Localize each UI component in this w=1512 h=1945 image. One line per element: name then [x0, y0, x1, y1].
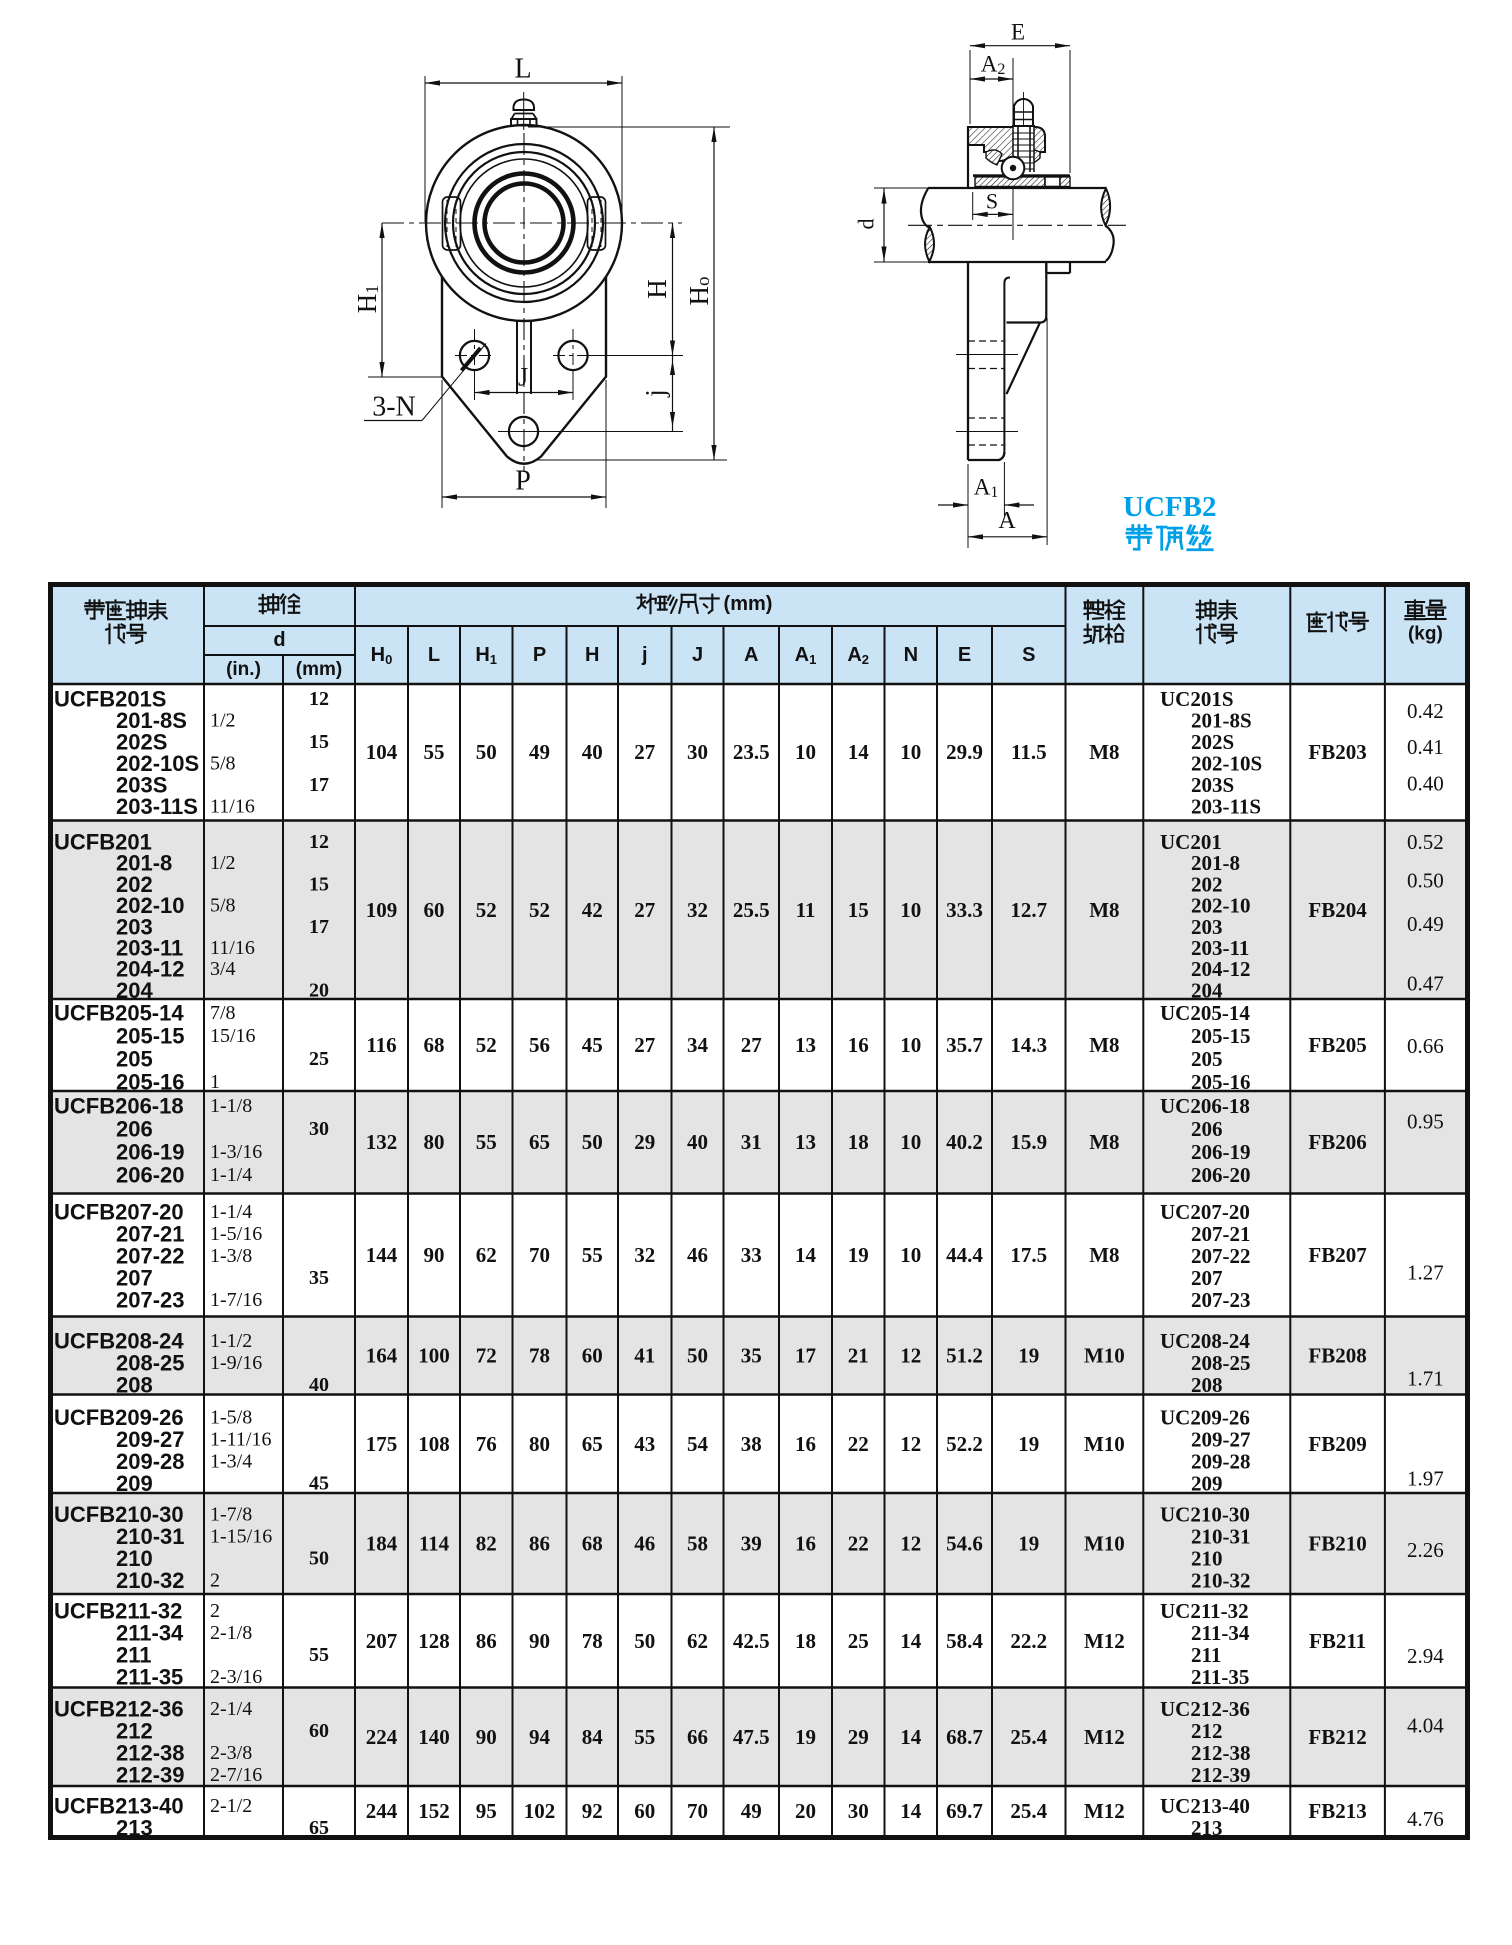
svg-text:55: 55 — [424, 740, 445, 764]
svg-text:A: A — [744, 644, 758, 666]
svg-text:102: 102 — [524, 1799, 556, 1823]
svg-text:55: 55 — [582, 1243, 603, 1267]
svg-text:205-16: 205-16 — [116, 1070, 185, 1095]
svg-text:60: 60 — [424, 898, 445, 922]
svg-text:132: 132 — [366, 1130, 398, 1154]
svg-text:5/8: 5/8 — [210, 895, 236, 917]
svg-text:FB212: FB212 — [1308, 1725, 1366, 1749]
svg-text:1/2: 1/2 — [210, 710, 236, 732]
svg-text:22: 22 — [848, 1432, 869, 1456]
svg-text:60: 60 — [582, 1344, 603, 1368]
svg-text:35: 35 — [741, 1344, 762, 1368]
svg-text:27: 27 — [741, 1033, 762, 1057]
svg-text:38: 38 — [741, 1432, 762, 1456]
svg-text:140: 140 — [418, 1725, 450, 1749]
svg-text:224: 224 — [366, 1725, 398, 1749]
svg-text:12: 12 — [309, 688, 329, 710]
svg-text:55: 55 — [309, 1644, 329, 1666]
svg-text:35: 35 — [309, 1267, 329, 1289]
svg-text:7/8: 7/8 — [210, 1002, 236, 1024]
svg-text:205-15: 205-15 — [1191, 1024, 1251, 1048]
svg-text:80: 80 — [424, 1130, 445, 1154]
svg-text:90: 90 — [529, 1629, 550, 1653]
svg-text:15: 15 — [309, 873, 329, 895]
svg-text:E: E — [1011, 20, 1025, 45]
svg-text:33.3: 33.3 — [946, 898, 983, 922]
svg-text:78: 78 — [529, 1344, 550, 1368]
svg-text:31: 31 — [741, 1130, 762, 1154]
svg-text:203-11S: 203-11S — [1191, 795, 1261, 819]
svg-text:M12: M12 — [1084, 1799, 1125, 1823]
svg-text:50: 50 — [634, 1629, 655, 1653]
svg-text:1-9/16: 1-9/16 — [210, 1352, 262, 1374]
svg-text:12: 12 — [900, 1432, 921, 1456]
svg-text:0.95: 0.95 — [1407, 1109, 1444, 1133]
svg-text:213: 213 — [1191, 1816, 1223, 1840]
svg-text:M12: M12 — [1084, 1629, 1125, 1653]
svg-text:212-39: 212-39 — [116, 1763, 185, 1788]
svg-text:90: 90 — [424, 1243, 445, 1267]
svg-text:3/4: 3/4 — [210, 958, 236, 980]
svg-text:2-1/4: 2-1/4 — [210, 1698, 252, 1720]
svg-text:206-19: 206-19 — [116, 1140, 185, 1165]
svg-text:2.26: 2.26 — [1407, 1538, 1444, 1562]
svg-text:45: 45 — [582, 1033, 603, 1057]
svg-text:1-3/16: 1-3/16 — [210, 1141, 262, 1163]
svg-text:0.50: 0.50 — [1407, 869, 1444, 893]
svg-text:212-38: 212-38 — [1191, 1741, 1251, 1765]
svg-text:32: 32 — [634, 1243, 655, 1267]
svg-text:29: 29 — [848, 1725, 869, 1749]
svg-text:25.5: 25.5 — [733, 898, 770, 922]
svg-text:60: 60 — [634, 1799, 655, 1823]
svg-text:52: 52 — [529, 898, 550, 922]
svg-text:104: 104 — [366, 740, 398, 764]
svg-text:55: 55 — [634, 1725, 655, 1749]
svg-text:M10: M10 — [1084, 1344, 1125, 1368]
svg-text:206-20: 206-20 — [116, 1163, 185, 1188]
svg-text:211-35: 211-35 — [116, 1665, 183, 1690]
svg-text:84: 84 — [582, 1725, 604, 1749]
svg-text:95: 95 — [476, 1799, 497, 1823]
svg-text:FB209: FB209 — [1308, 1432, 1366, 1456]
svg-text:211-35: 211-35 — [1191, 1665, 1249, 1689]
svg-text:15: 15 — [848, 898, 869, 922]
svg-text:H: H — [585, 644, 599, 666]
svg-text:3-N: 3-N — [372, 392, 416, 423]
svg-text:209-27: 209-27 — [1191, 1428, 1251, 1452]
svg-text:14: 14 — [848, 740, 870, 764]
svg-text:1-3/4: 1-3/4 — [210, 1451, 252, 1473]
svg-text:205: 205 — [116, 1047, 153, 1072]
svg-text:1-1/2: 1-1/2 — [210, 1330, 252, 1352]
svg-text:2: 2 — [210, 1600, 220, 1622]
svg-text:30: 30 — [687, 740, 708, 764]
svg-text:52: 52 — [476, 898, 497, 922]
svg-text:40: 40 — [309, 1374, 329, 1396]
svg-text:M10: M10 — [1084, 1532, 1125, 1556]
svg-text:207-22: 207-22 — [1191, 1244, 1251, 1268]
svg-text:206-19: 206-19 — [1191, 1140, 1251, 1164]
svg-text:54.6: 54.6 — [946, 1532, 983, 1556]
svg-text:1-7/8: 1-7/8 — [210, 1504, 252, 1526]
svg-text:13: 13 — [795, 1033, 816, 1057]
svg-text:1-1/4: 1-1/4 — [210, 1164, 252, 1186]
svg-text:108: 108 — [418, 1432, 450, 1456]
svg-text:M8: M8 — [1089, 1130, 1119, 1154]
svg-text:33: 33 — [741, 1243, 762, 1267]
svg-text:21: 21 — [848, 1344, 869, 1368]
svg-text:206: 206 — [1191, 1117, 1223, 1141]
svg-text:1-3/8: 1-3/8 — [210, 1245, 252, 1267]
svg-text:FB203: FB203 — [1308, 740, 1366, 764]
svg-text:65: 65 — [582, 1432, 603, 1456]
svg-text:49: 49 — [529, 740, 550, 764]
svg-text:205-16: 205-16 — [1191, 1070, 1251, 1094]
svg-text:UC207-20: UC207-20 — [1160, 1200, 1250, 1224]
svg-text:FB205: FB205 — [1308, 1033, 1366, 1057]
svg-text:16: 16 — [795, 1432, 816, 1456]
svg-text:44.4: 44.4 — [946, 1243, 983, 1267]
svg-text:69.7: 69.7 — [946, 1799, 983, 1823]
svg-text:202-10S: 202-10S — [1191, 752, 1262, 776]
svg-text:M8: M8 — [1089, 740, 1119, 764]
svg-text:19: 19 — [795, 1725, 816, 1749]
svg-text:18: 18 — [795, 1629, 816, 1653]
svg-text:202S: 202S — [1191, 730, 1234, 754]
svg-text:2-3/8: 2-3/8 — [210, 1742, 252, 1764]
svg-text:11: 11 — [796, 898, 816, 922]
svg-text:25.4: 25.4 — [1010, 1799, 1047, 1823]
svg-text:209: 209 — [116, 1471, 153, 1496]
svg-text:62: 62 — [687, 1629, 708, 1653]
svg-text:2-3/16: 2-3/16 — [210, 1666, 262, 1688]
svg-text:1-1/8: 1-1/8 — [210, 1095, 252, 1117]
svg-text:17: 17 — [795, 1344, 816, 1368]
svg-text:70: 70 — [687, 1799, 708, 1823]
svg-text:90: 90 — [476, 1725, 497, 1749]
svg-text:40: 40 — [582, 740, 603, 764]
svg-text:204: 204 — [1191, 978, 1223, 1002]
svg-text:1.27: 1.27 — [1407, 1260, 1444, 1284]
svg-text:10: 10 — [900, 1130, 921, 1154]
svg-text:17: 17 — [309, 916, 329, 938]
svg-text:52: 52 — [476, 1033, 497, 1057]
svg-text:58.4: 58.4 — [946, 1629, 983, 1653]
svg-text:68: 68 — [424, 1033, 445, 1057]
svg-text:11/16: 11/16 — [210, 796, 255, 818]
svg-text:86: 86 — [476, 1629, 497, 1653]
svg-text:14: 14 — [795, 1243, 817, 1267]
svg-text:205-15: 205-15 — [116, 1024, 185, 1049]
svg-text:12: 12 — [309, 831, 329, 853]
svg-text:80: 80 — [529, 1432, 550, 1456]
svg-text:J: J — [692, 644, 703, 666]
svg-text:42: 42 — [582, 898, 603, 922]
svg-text:25: 25 — [848, 1629, 869, 1653]
svg-text:39: 39 — [741, 1532, 762, 1556]
svg-text:1/2: 1/2 — [210, 852, 236, 874]
svg-text:FB207: FB207 — [1308, 1243, 1366, 1267]
svg-text:4.76: 4.76 — [1407, 1807, 1444, 1831]
svg-text:208: 208 — [116, 1373, 153, 1398]
svg-text:A: A — [998, 508, 1016, 534]
svg-text:164: 164 — [366, 1344, 398, 1368]
svg-text:82: 82 — [476, 1532, 497, 1556]
svg-text:201-8S: 201-8S — [1191, 709, 1252, 733]
svg-text:19: 19 — [1018, 1432, 1039, 1456]
svg-text:128: 128 — [418, 1629, 450, 1653]
svg-text:32: 32 — [687, 898, 708, 922]
svg-text:144: 144 — [366, 1243, 398, 1267]
svg-text:50: 50 — [687, 1344, 708, 1368]
svg-text:29.9: 29.9 — [946, 740, 983, 764]
svg-text:P: P — [515, 466, 531, 497]
svg-text:209-28: 209-28 — [1191, 1450, 1251, 1474]
svg-text:5/8: 5/8 — [210, 753, 236, 775]
svg-text:207-21: 207-21 — [1191, 1222, 1251, 1246]
svg-text:27: 27 — [634, 898, 655, 922]
svg-text:50: 50 — [309, 1548, 329, 1570]
svg-text:66: 66 — [687, 1725, 708, 1749]
svg-text:209: 209 — [1191, 1472, 1223, 1496]
svg-text:19: 19 — [1018, 1344, 1039, 1368]
svg-text:1-11/16: 1-11/16 — [210, 1429, 271, 1451]
svg-text:M10: M10 — [1084, 1432, 1125, 1456]
svg-text:S: S — [986, 189, 998, 214]
svg-text:M12: M12 — [1084, 1725, 1125, 1749]
svg-text:45: 45 — [309, 1473, 329, 1495]
svg-text:12.7: 12.7 — [1010, 898, 1047, 922]
svg-text:FB213: FB213 — [1308, 1799, 1366, 1823]
svg-text:UC209-26: UC209-26 — [1160, 1406, 1250, 1430]
svg-text:UC212-36: UC212-36 — [1160, 1697, 1250, 1721]
svg-text:65: 65 — [529, 1130, 550, 1154]
svg-text:46: 46 — [687, 1243, 708, 1267]
svg-text:19: 19 — [848, 1243, 869, 1267]
svg-text:(mm): (mm) — [724, 593, 773, 615]
svg-text:116: 116 — [366, 1033, 396, 1057]
svg-text:52.2: 52.2 — [946, 1432, 983, 1456]
svg-text:0.40: 0.40 — [1407, 772, 1444, 796]
svg-text:208: 208 — [1191, 1373, 1223, 1397]
svg-text:47.5: 47.5 — [733, 1725, 770, 1749]
svg-text:FB208: FB208 — [1308, 1344, 1366, 1368]
svg-text:50: 50 — [476, 740, 497, 764]
svg-text:S: S — [1022, 644, 1035, 666]
svg-text:FB204: FB204 — [1308, 898, 1367, 922]
svg-text:207-23: 207-23 — [1191, 1288, 1251, 1312]
svg-text:d: d — [854, 219, 879, 230]
svg-text:56: 56 — [529, 1033, 550, 1057]
svg-text:22: 22 — [848, 1532, 869, 1556]
svg-text:17.5: 17.5 — [1010, 1243, 1047, 1267]
svg-text:0.47: 0.47 — [1407, 972, 1444, 996]
svg-text:j: j — [640, 389, 670, 398]
svg-text:213: 213 — [116, 1816, 153, 1841]
svg-text:207-23: 207-23 — [116, 1288, 185, 1313]
svg-text:42.5: 42.5 — [733, 1629, 770, 1653]
svg-text:UC213-40: UC213-40 — [1160, 1794, 1250, 1818]
svg-text:30: 30 — [848, 1799, 869, 1823]
svg-text:20: 20 — [795, 1799, 816, 1823]
svg-text:78: 78 — [582, 1629, 603, 1653]
svg-text:1-7/16: 1-7/16 — [210, 1289, 262, 1311]
svg-text:244: 244 — [366, 1799, 398, 1823]
svg-text:40.2: 40.2 — [946, 1130, 983, 1154]
svg-text:11/16: 11/16 — [210, 937, 255, 959]
svg-text:205: 205 — [1191, 1047, 1223, 1071]
svg-text:11.5: 11.5 — [1011, 740, 1047, 764]
svg-text:UC210-30: UC210-30 — [1160, 1503, 1250, 1527]
svg-text:L: L — [428, 644, 440, 666]
svg-text:68: 68 — [582, 1532, 603, 1556]
svg-text:1-5/8: 1-5/8 — [210, 1407, 252, 1429]
svg-text:0.42: 0.42 — [1407, 699, 1444, 723]
svg-text:UCFB205-14: UCFB205-14 — [54, 1001, 184, 1026]
svg-text:15/16: 15/16 — [210, 1025, 256, 1047]
svg-text:0.52: 0.52 — [1407, 830, 1444, 854]
svg-text:100: 100 — [418, 1344, 450, 1368]
svg-text:25.4: 25.4 — [1010, 1725, 1047, 1749]
svg-text:34: 34 — [687, 1033, 709, 1057]
svg-text:L: L — [514, 54, 531, 85]
svg-text:46: 46 — [634, 1532, 655, 1556]
svg-text:62: 62 — [476, 1243, 497, 1267]
svg-text:M8: M8 — [1089, 1243, 1119, 1267]
svg-text:(kg): (kg) — [1408, 624, 1443, 645]
svg-text:d: d — [273, 629, 285, 651]
svg-text:13: 13 — [795, 1130, 816, 1154]
svg-text:208-25: 208-25 — [1191, 1351, 1251, 1375]
svg-text:10: 10 — [900, 740, 921, 764]
svg-text:35.7: 35.7 — [946, 1033, 983, 1057]
svg-text:0.49: 0.49 — [1407, 912, 1444, 936]
svg-text:UC208-24: UC208-24 — [1160, 1329, 1250, 1353]
svg-text:2.94: 2.94 — [1407, 1644, 1444, 1668]
svg-text:14: 14 — [900, 1629, 922, 1653]
svg-text:FB210: FB210 — [1308, 1532, 1366, 1556]
svg-text:175: 175 — [366, 1432, 398, 1456]
svg-text:203S: 203S — [1191, 773, 1234, 797]
svg-text:18: 18 — [848, 1130, 869, 1154]
svg-text:212: 212 — [1191, 1719, 1223, 1743]
svg-text:2-1/8: 2-1/8 — [210, 1622, 252, 1644]
svg-text:55: 55 — [476, 1130, 497, 1154]
svg-text:1-1/4: 1-1/4 — [210, 1201, 252, 1223]
svg-text:14: 14 — [900, 1725, 922, 1749]
svg-text:51.2: 51.2 — [946, 1344, 983, 1368]
svg-text:10: 10 — [795, 740, 816, 764]
svg-text:27: 27 — [634, 740, 655, 764]
svg-text:30: 30 — [309, 1118, 329, 1140]
svg-text:1.97: 1.97 — [1407, 1467, 1444, 1491]
svg-text:152: 152 — [418, 1799, 450, 1823]
svg-text:10: 10 — [900, 1033, 921, 1057]
svg-text:H: H — [642, 279, 672, 299]
svg-text:204: 204 — [116, 978, 153, 1003]
svg-text:29: 29 — [634, 1130, 655, 1154]
svg-text:40: 40 — [687, 1130, 708, 1154]
svg-text:54: 54 — [687, 1432, 709, 1456]
svg-text:12: 12 — [900, 1532, 921, 1556]
svg-text:23.5: 23.5 — [733, 740, 770, 764]
svg-text:92: 92 — [582, 1799, 603, 1823]
svg-text:UC205-14: UC205-14 — [1160, 1001, 1250, 1025]
svg-text:UC211-32: UC211-32 — [1160, 1599, 1249, 1623]
svg-text:2-7/16: 2-7/16 — [210, 1764, 262, 1786]
svg-text:15.9: 15.9 — [1010, 1130, 1047, 1154]
svg-text:14: 14 — [900, 1799, 922, 1823]
svg-text:15: 15 — [309, 731, 329, 753]
svg-text:211: 211 — [1191, 1643, 1221, 1667]
svg-text:94: 94 — [529, 1725, 551, 1749]
svg-text:22.2: 22.2 — [1010, 1629, 1047, 1653]
svg-text:FB206: FB206 — [1308, 1130, 1366, 1154]
svg-text:49: 49 — [741, 1799, 762, 1823]
svg-text:UC206-18: UC206-18 — [1160, 1094, 1250, 1118]
svg-text:50: 50 — [582, 1130, 603, 1154]
svg-text:2-1/2: 2-1/2 — [210, 1795, 252, 1817]
svg-text:2: 2 — [210, 1570, 220, 1592]
svg-text:0.41: 0.41 — [1407, 735, 1444, 759]
svg-text:10: 10 — [900, 1243, 921, 1267]
svg-text:210-31: 210-31 — [1191, 1525, 1251, 1549]
svg-text:72: 72 — [476, 1344, 497, 1368]
svg-text:210-32: 210-32 — [1191, 1569, 1251, 1593]
svg-text:UC201S: UC201S — [1160, 687, 1234, 711]
svg-text:10: 10 — [900, 898, 921, 922]
svg-text:M8: M8 — [1089, 1033, 1119, 1057]
svg-text:UCFB206-18: UCFB206-18 — [54, 1094, 184, 1119]
svg-text:0.66: 0.66 — [1407, 1034, 1444, 1058]
svg-text:70: 70 — [529, 1243, 550, 1267]
svg-text:12: 12 — [900, 1344, 921, 1368]
svg-text:41: 41 — [634, 1344, 655, 1368]
svg-text:16: 16 — [795, 1532, 816, 1556]
svg-text:17: 17 — [309, 774, 329, 796]
svg-text:211-34: 211-34 — [1191, 1621, 1250, 1645]
svg-text:(mm): (mm) — [296, 659, 342, 680]
svg-text:207: 207 — [1191, 1266, 1223, 1290]
svg-text:N: N — [904, 644, 918, 666]
svg-text:65: 65 — [309, 1817, 329, 1839]
svg-text:203-11S: 203-11S — [116, 794, 198, 819]
svg-text:20: 20 — [309, 979, 329, 1001]
svg-text:206: 206 — [116, 1117, 153, 1142]
svg-text:212-39: 212-39 — [1191, 1763, 1251, 1787]
svg-text:184: 184 — [366, 1532, 398, 1556]
svg-text:1-5/16: 1-5/16 — [210, 1223, 262, 1245]
svg-text:109: 109 — [366, 898, 398, 922]
svg-text:86: 86 — [529, 1532, 550, 1556]
svg-text:j: j — [641, 644, 648, 666]
svg-text:60: 60 — [309, 1720, 329, 1742]
svg-text:206-20: 206-20 — [1191, 1163, 1251, 1187]
svg-text:68.7: 68.7 — [946, 1725, 983, 1749]
svg-text:76: 76 — [476, 1432, 497, 1456]
svg-text:M8: M8 — [1089, 898, 1119, 922]
svg-text:P: P — [533, 644, 546, 666]
svg-text:FB211: FB211 — [1309, 1629, 1366, 1653]
svg-text:25: 25 — [309, 1048, 329, 1070]
svg-text:UCFB2: UCFB2 — [1123, 491, 1216, 523]
svg-text:19: 19 — [1018, 1532, 1039, 1556]
svg-text:E: E — [958, 644, 971, 666]
svg-text:1.71: 1.71 — [1407, 1367, 1444, 1391]
svg-text:14.3: 14.3 — [1010, 1033, 1047, 1057]
svg-text:16: 16 — [848, 1033, 869, 1057]
